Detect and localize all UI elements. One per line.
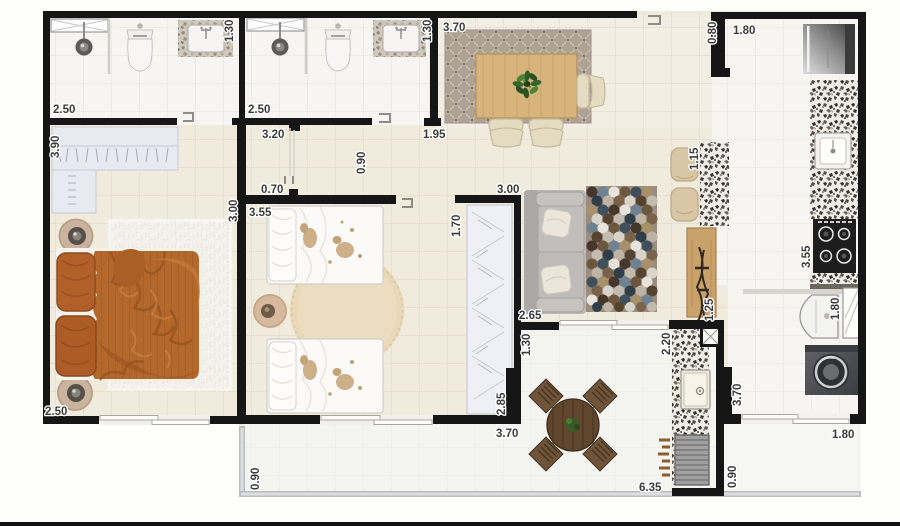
svg-text:0.90: 0.90 (356, 152, 368, 174)
svg-text:0.90: 0.90 (250, 468, 262, 490)
svg-text:1.80: 1.80 (830, 298, 842, 320)
svg-text:0.90: 0.90 (727, 466, 739, 488)
svg-text:2.50: 2.50 (45, 406, 67, 418)
svg-text:2.20: 2.20 (661, 333, 673, 355)
svg-text:1.30: 1.30 (224, 20, 236, 42)
svg-text:0.70: 0.70 (261, 184, 283, 196)
svg-text:3.90: 3.90 (50, 136, 62, 158)
svg-text:1.95: 1.95 (423, 129, 446, 141)
svg-text:2.65: 2.65 (519, 310, 542, 322)
svg-text:3.70: 3.70 (443, 22, 465, 34)
svg-text:3.55: 3.55 (249, 207, 272, 219)
svg-text:0.80: 0.80 (707, 22, 719, 44)
svg-text:3.55: 3.55 (801, 245, 813, 268)
svg-text:1.25: 1.25 (704, 298, 716, 321)
svg-text:3.70: 3.70 (496, 428, 518, 440)
svg-text:3.70: 3.70 (732, 384, 744, 406)
svg-text:1.70: 1.70 (451, 215, 463, 237)
svg-text:3.00: 3.00 (497, 184, 519, 196)
svg-text:2.50: 2.50 (53, 104, 75, 116)
svg-text:3.00: 3.00 (228, 200, 240, 222)
svg-text:1.30: 1.30 (521, 334, 533, 356)
svg-text:1.15: 1.15 (689, 147, 701, 170)
svg-text:2.50: 2.50 (248, 104, 270, 116)
svg-text:6.35: 6.35 (639, 482, 662, 494)
svg-text:1.80: 1.80 (832, 429, 854, 441)
svg-text:1.30: 1.30 (422, 20, 434, 42)
svg-text:3.20: 3.20 (262, 129, 284, 141)
svg-text:2.85: 2.85 (496, 392, 508, 415)
svg-text:1.80: 1.80 (733, 25, 755, 37)
